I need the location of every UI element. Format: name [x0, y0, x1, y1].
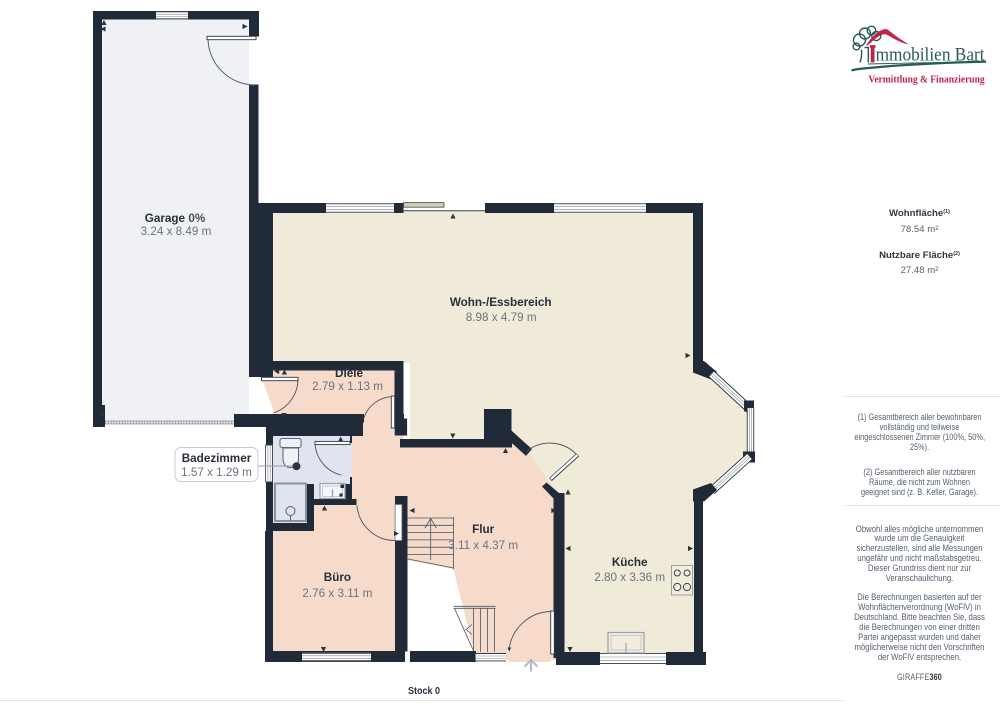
svg-text:mmobilien Bart: mmobilien Bart [876, 44, 985, 65]
svg-text:Vermittlung & Finanzierung: Vermittlung & Finanzierung [868, 74, 984, 85]
